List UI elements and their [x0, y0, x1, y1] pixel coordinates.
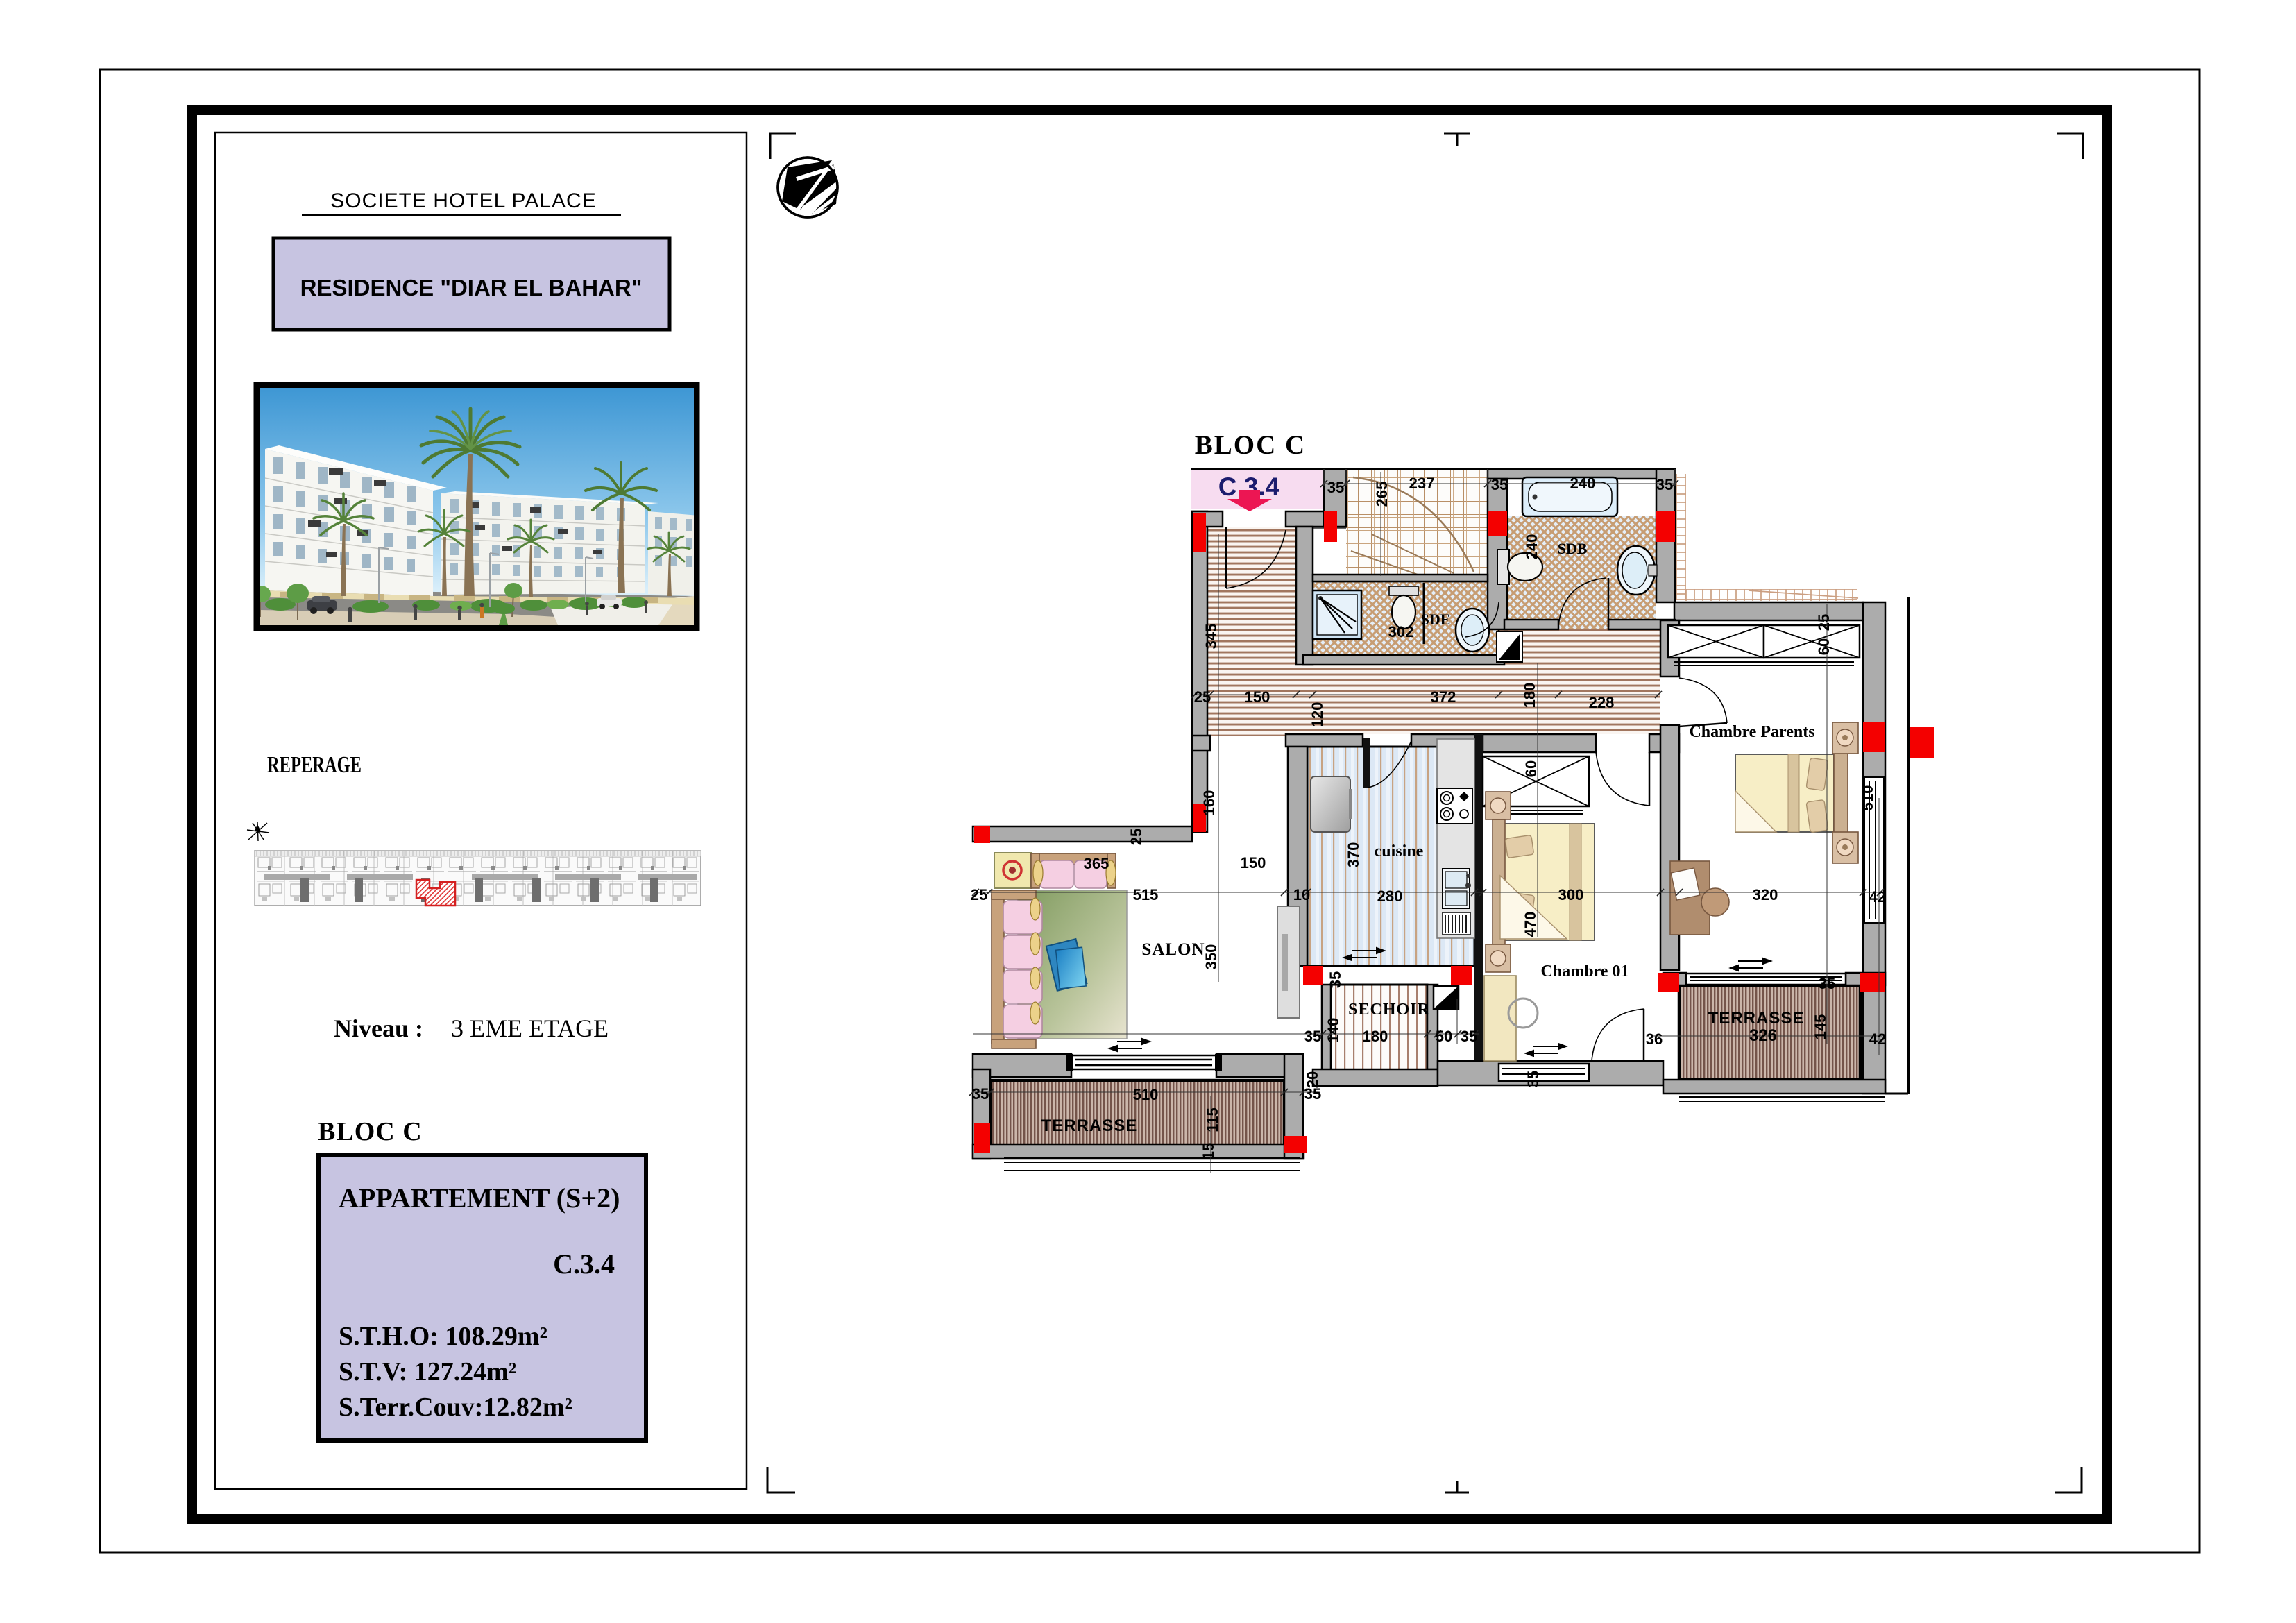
svg-text:BLOC C: BLOC C [1195, 430, 1306, 460]
svg-text:510: 510 [1859, 785, 1876, 811]
svg-text:160: 160 [1200, 790, 1218, 816]
svg-text:35: 35 [1327, 479, 1344, 496]
svg-text:370: 370 [1345, 842, 1362, 868]
svg-text:150: 150 [1245, 688, 1270, 706]
svg-text:345: 345 [1202, 624, 1220, 649]
svg-text:TERRASSE: TERRASSE [1041, 1116, 1138, 1135]
svg-text:25: 25 [1815, 614, 1832, 631]
svg-text:BLOC C: BLOC C [318, 1117, 423, 1146]
svg-text:Niveau :: Niveau : [334, 1014, 423, 1042]
svg-text:25: 25 [1128, 829, 1145, 845]
svg-text:S.T.V: 127.24m²: S.T.V: 127.24m² [339, 1357, 516, 1386]
svg-text:320: 320 [1753, 886, 1778, 903]
svg-text:326: 326 [1749, 1026, 1777, 1045]
svg-text:300: 300 [1558, 886, 1584, 903]
svg-text:36: 36 [1646, 1030, 1663, 1048]
svg-text:140: 140 [1325, 1018, 1342, 1044]
svg-text:TERRASSE: TERRASSE [1708, 1009, 1805, 1028]
svg-text:35: 35 [1656, 476, 1673, 493]
svg-text:S.Terr.Couv:12.82m²: S.Terr.Couv:12.82m² [339, 1393, 572, 1422]
svg-text:240: 240 [1570, 475, 1596, 492]
svg-text:35: 35 [1304, 1028, 1321, 1045]
svg-text:Chambre Parents: Chambre Parents [1689, 723, 1814, 741]
svg-text:35: 35 [972, 1085, 989, 1103]
svg-text:35: 35 [1524, 1071, 1542, 1087]
svg-text:372: 372 [1431, 688, 1456, 706]
svg-text:280: 280 [1377, 887, 1403, 905]
svg-text:35: 35 [1461, 1028, 1477, 1045]
svg-text:35: 35 [1304, 1085, 1321, 1103]
svg-text:15: 15 [1200, 1143, 1217, 1159]
svg-text:180: 180 [1363, 1028, 1388, 1045]
svg-text:228: 228 [1589, 694, 1615, 711]
svg-text:3 EME ETAGE: 3 EME ETAGE [451, 1014, 609, 1042]
svg-text:35: 35 [1327, 971, 1344, 988]
svg-text:60: 60 [1522, 760, 1540, 777]
svg-text:50: 50 [1436, 1028, 1452, 1045]
svg-text:SOCIETE HOTEL PALACE: SOCIETE HOTEL PALACE [330, 189, 596, 212]
svg-text:237: 237 [1409, 475, 1435, 492]
svg-text:180: 180 [1521, 683, 1538, 708]
svg-text:25: 25 [1194, 688, 1211, 706]
svg-text:240: 240 [1523, 534, 1540, 560]
svg-text:145: 145 [1812, 1014, 1829, 1040]
svg-text:Chambre 01: Chambre 01 [1541, 962, 1629, 980]
svg-text:SDB: SDB [1558, 540, 1588, 557]
svg-text:RESIDENCE "DIAR EL BAHAR": RESIDENCE "DIAR EL BAHAR" [300, 275, 643, 300]
svg-text:265: 265 [1373, 482, 1391, 507]
svg-text:S.T.H.O: 108.29m²: S.T.H.O: 108.29m² [339, 1322, 547, 1351]
svg-text:25: 25 [971, 886, 987, 903]
svg-text:10: 10 [1293, 886, 1310, 903]
svg-text:115: 115 [1204, 1107, 1221, 1132]
svg-text:365: 365 [1084, 855, 1109, 872]
svg-text:470: 470 [1522, 912, 1539, 937]
svg-text:350: 350 [1202, 944, 1220, 970]
svg-text:42: 42 [1869, 888, 1886, 906]
svg-text:515: 515 [1133, 886, 1159, 903]
svg-text:cuisine: cuisine [1375, 842, 1424, 860]
svg-text:510: 510 [1133, 1086, 1159, 1103]
svg-text:120: 120 [1309, 702, 1326, 728]
svg-text:42: 42 [1869, 1030, 1886, 1048]
svg-text:APPARTEMENT (S+2): APPARTEMENT (S+2) [339, 1182, 620, 1214]
svg-text:35: 35 [1819, 975, 1835, 992]
svg-text:C.3.4: C.3.4 [553, 1248, 615, 1280]
svg-text:302: 302 [1388, 623, 1414, 640]
svg-text:SALON: SALON [1141, 940, 1205, 959]
svg-text:SECHOIR: SECHOIR [1348, 1001, 1430, 1019]
svg-text:35: 35 [1491, 476, 1508, 493]
svg-text:SDE: SDE [1421, 611, 1451, 628]
svg-text:60: 60 [1815, 638, 1832, 655]
svg-text:REPERAGE: REPERAGE [267, 752, 362, 778]
svg-text:150: 150 [1241, 854, 1266, 872]
